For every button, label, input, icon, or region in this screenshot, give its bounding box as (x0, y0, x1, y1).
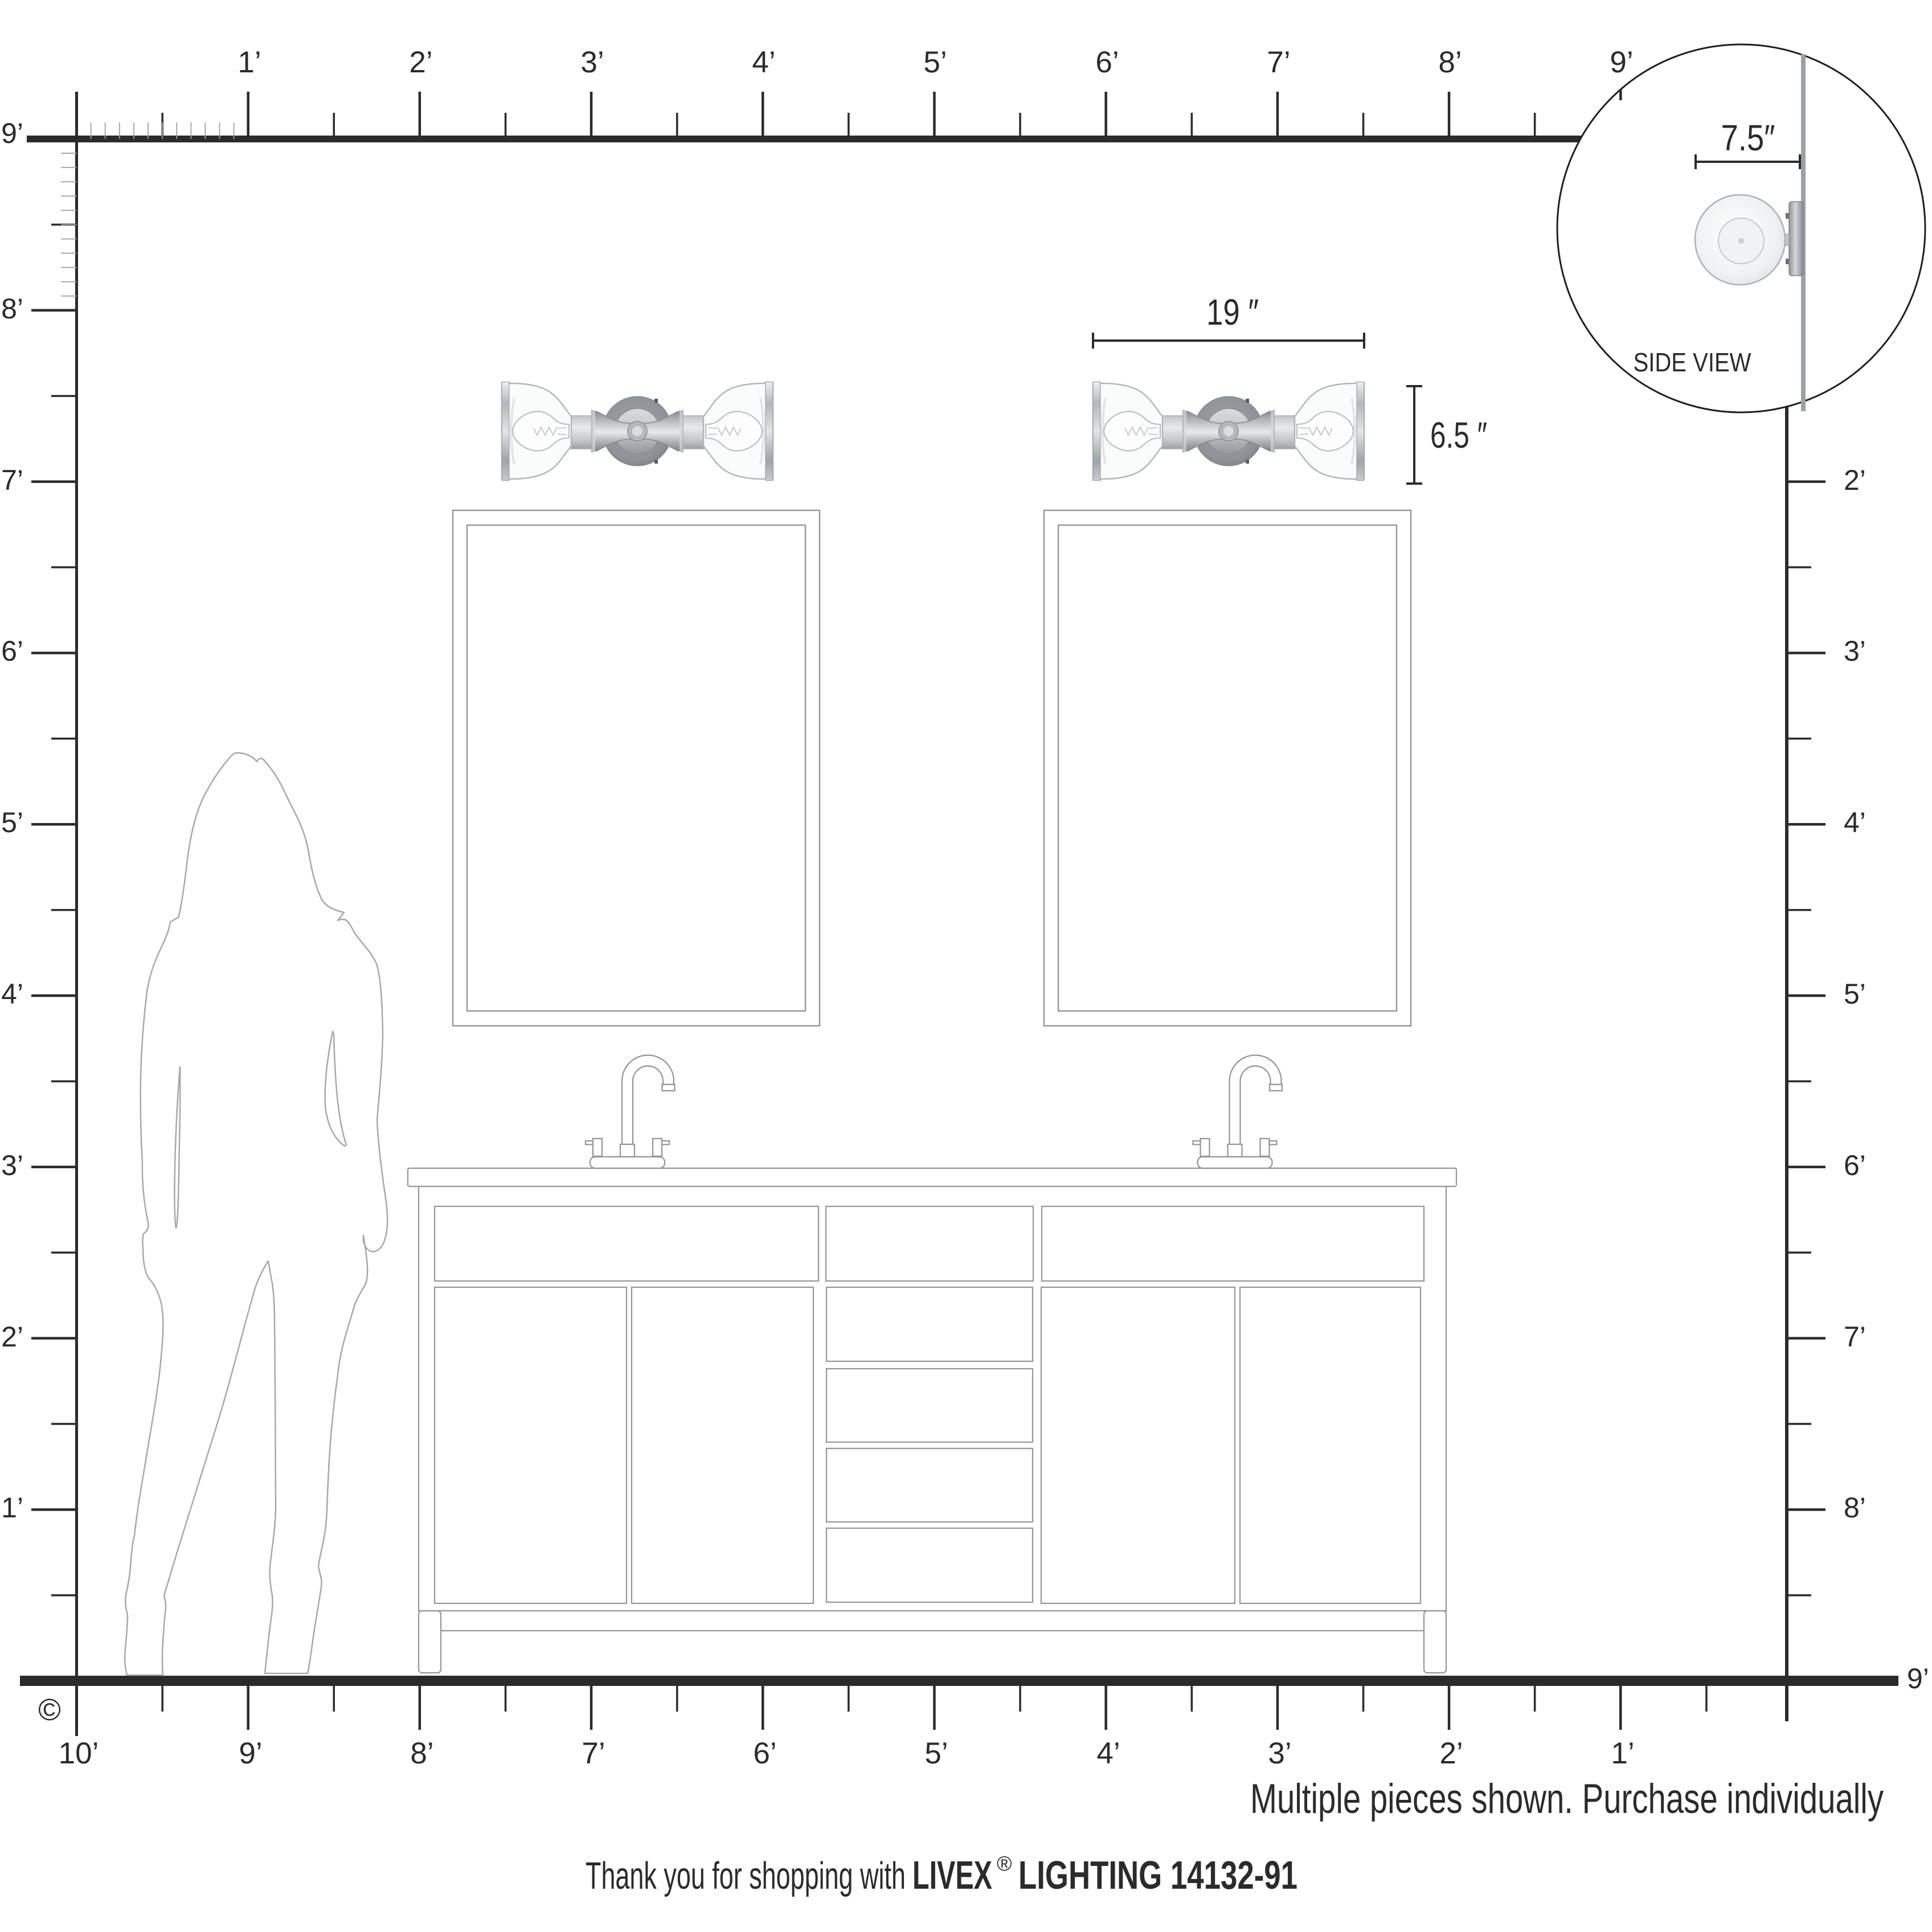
svg-text:6.5 ″: 6.5 ″ (1430, 415, 1487, 456)
svg-text:5’: 5’ (924, 1737, 948, 1770)
svg-text:8’: 8’ (1844, 1492, 1866, 1524)
svg-text:3’: 3’ (1268, 1737, 1291, 1770)
svg-text:5’: 5’ (1844, 978, 1866, 1010)
svg-text:Thank you for shopping with: Thank you for shopping with (586, 1855, 906, 1897)
svg-text:6’: 6’ (1095, 46, 1119, 79)
svg-text:1’: 1’ (238, 46, 261, 79)
svg-text:6’: 6’ (1844, 1149, 1866, 1181)
svg-text:8’: 8’ (410, 1737, 433, 1770)
svg-text:©: © (38, 1693, 61, 1727)
svg-text:1’: 1’ (1, 1492, 23, 1524)
svg-text:7’: 7’ (1, 464, 23, 496)
svg-text:9’: 9’ (1, 117, 23, 149)
svg-text:7.5″: 7.5″ (1721, 117, 1775, 158)
svg-text:9’: 9’ (239, 1737, 262, 1770)
svg-text:3’: 3’ (580, 46, 604, 79)
svg-text:5’: 5’ (1, 807, 23, 838)
svg-text:3’: 3’ (1, 1149, 23, 1181)
svg-text:8’: 8’ (1438, 46, 1462, 79)
svg-text:7’: 7’ (1267, 46, 1290, 79)
svg-text:1’: 1’ (1611, 1737, 1634, 1770)
svg-text:3’: 3’ (1844, 635, 1866, 667)
svg-text:LIGHTING 14132-91: LIGHTING 14132-91 (1018, 1853, 1297, 1897)
svg-text:5’: 5’ (923, 46, 947, 79)
svg-text:4’: 4’ (1096, 1737, 1120, 1770)
svg-text:6’: 6’ (753, 1737, 776, 1770)
svg-text:4’: 4’ (1844, 807, 1866, 838)
svg-text:Multiple pieces shown. Purchas: Multiple pieces shown. Purchase individu… (1250, 1776, 1884, 1822)
svg-text:2’: 2’ (1439, 1737, 1463, 1770)
svg-text:2’: 2’ (1, 1321, 23, 1353)
svg-text:4’: 4’ (752, 46, 775, 79)
svg-text:19 ″: 19 ″ (1206, 292, 1259, 333)
svg-text:10’: 10’ (59, 1737, 99, 1770)
svg-text:7’: 7’ (582, 1737, 605, 1770)
svg-text:9’: 9’ (1610, 46, 1633, 79)
svg-text:2’: 2’ (1844, 464, 1866, 496)
svg-text:8’: 8’ (1, 293, 23, 325)
svg-text:4’: 4’ (1, 978, 23, 1010)
svg-text:SIDE VIEW: SIDE VIEW (1634, 347, 1751, 377)
svg-text:9’: 9’ (1907, 1663, 1929, 1694)
svg-text:2’: 2’ (409, 46, 432, 79)
svg-text:LIVEX: LIVEX (912, 1853, 992, 1897)
svg-text:6’: 6’ (1, 635, 23, 667)
svg-text:®: ® (997, 1852, 1012, 1875)
svg-text:7’: 7’ (1844, 1321, 1866, 1353)
